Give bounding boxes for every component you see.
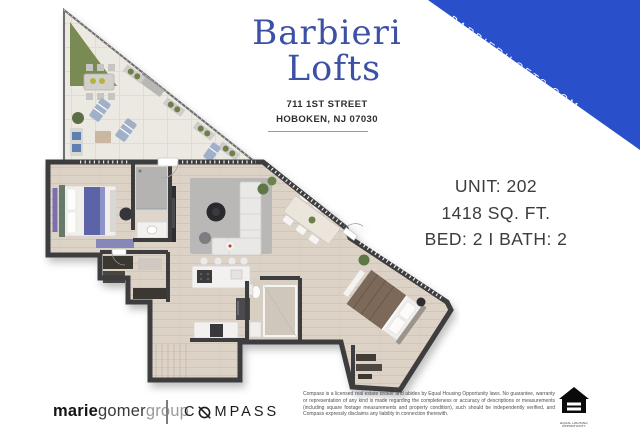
equal-housing-label: EQUAL HOUSING OPPORTUNITY xyxy=(556,422,592,429)
brokerage-part-1: marie xyxy=(53,402,98,420)
brokerage-logo: mariegomergroup xyxy=(53,402,189,421)
master-bed xyxy=(59,185,116,237)
footer-divider xyxy=(166,400,168,424)
runner-rug xyxy=(53,188,58,232)
foot-rug xyxy=(96,239,134,248)
compass-suffix: MPASS xyxy=(214,404,279,420)
compass-o-icon xyxy=(198,406,211,419)
unit-body xyxy=(48,158,451,390)
plant xyxy=(268,177,277,186)
flyer-page: BARBIERILOFTS.COM Barbieri Lofts 711 1ST… xyxy=(0,0,640,440)
compass-prefix: C xyxy=(184,404,197,420)
sink xyxy=(147,226,157,234)
plant xyxy=(359,255,370,266)
island-sink xyxy=(231,270,242,279)
terrace xyxy=(64,10,255,162)
compass-logo: C MPASS xyxy=(184,404,279,420)
armchair xyxy=(120,208,133,221)
brokerage-part-2: gomer xyxy=(98,402,146,420)
pouf xyxy=(199,232,211,244)
cooktop xyxy=(197,270,212,283)
equal-housing-logo: EQUAL HOUSING OPPORTUNITY xyxy=(556,385,592,429)
side-table xyxy=(417,298,426,307)
legal-disclaimer: Compass is a licensed real estate broker… xyxy=(303,391,555,418)
shower xyxy=(136,167,167,209)
outdoor-dining-set xyxy=(84,64,115,100)
website-url: BARBIERILOFTS.COM xyxy=(447,14,582,114)
floor-plan-rendering xyxy=(28,0,460,400)
equal-housing-house-icon xyxy=(556,385,592,417)
vanity-2 xyxy=(250,322,261,337)
oven xyxy=(210,324,223,337)
plant xyxy=(258,184,269,195)
